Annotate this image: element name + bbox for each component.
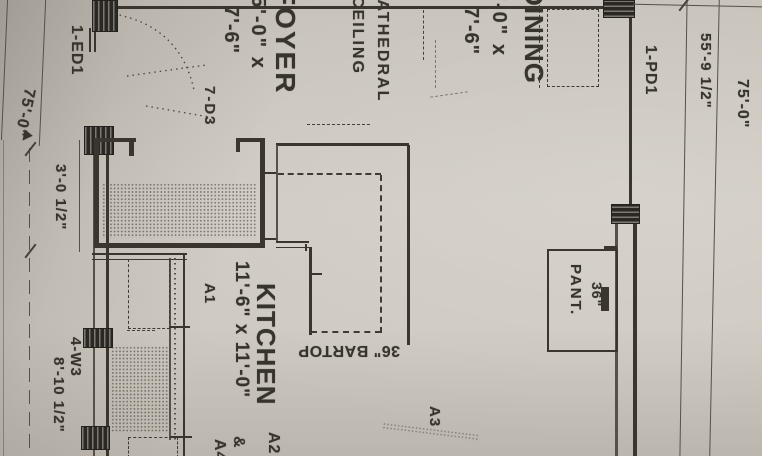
pantry-width-label: 36": [590, 282, 604, 307]
dining-size-line2: 7'-6": [461, 7, 481, 55]
dimension-window-width: 8'-10 1/2": [51, 357, 66, 433]
dimension-right-total: 75'-0": [734, 79, 750, 128]
ceiling-note-line1: CATHEDRAL: [374, 0, 390, 102]
ceiling-note-line2: CEILING: [349, 0, 365, 75]
marker-a4: A4: [211, 439, 227, 456]
dining-size-line1: 15'-0" x: [489, 0, 509, 57]
entry-door-tag: 1-ED1: [68, 25, 84, 75]
room-label-dining: DINING: [521, 0, 547, 84]
foyer-size-line2: 7'-6": [221, 6, 241, 54]
kitchen-size: 11'-6" x 11'-0": [232, 261, 251, 398]
floor-plan-photo: 75'-0" ▶ 1-ED1 FOYER 5'-0" x 7'-6" 7-D3 …: [0, 0, 762, 456]
marker-a2: A2: [265, 432, 281, 454]
dimension-right-partial: 55'-9 1/2": [698, 33, 713, 109]
door-tag-7d3: 7-D3: [202, 86, 217, 127]
marker-a1: A1: [202, 283, 217, 304]
foyer-size-line1: 5'-0" x: [248, 0, 268, 70]
pantry-name-label: PANT.: [568, 264, 583, 316]
bartop-label: 36" BARTOP: [287, 341, 411, 359]
room-label-kitchen: KITCHEN: [253, 283, 279, 406]
window-tag-4w3: 4-W3: [68, 337, 83, 377]
marker-ampersand: &: [230, 436, 246, 449]
pocket-door-tag: 1-PD1: [642, 45, 658, 95]
dimension-stair-width: 3'-0 1/2": [53, 164, 68, 230]
marker-a3: A3: [427, 406, 442, 427]
room-label-foyer: FOYER: [271, 0, 299, 94]
